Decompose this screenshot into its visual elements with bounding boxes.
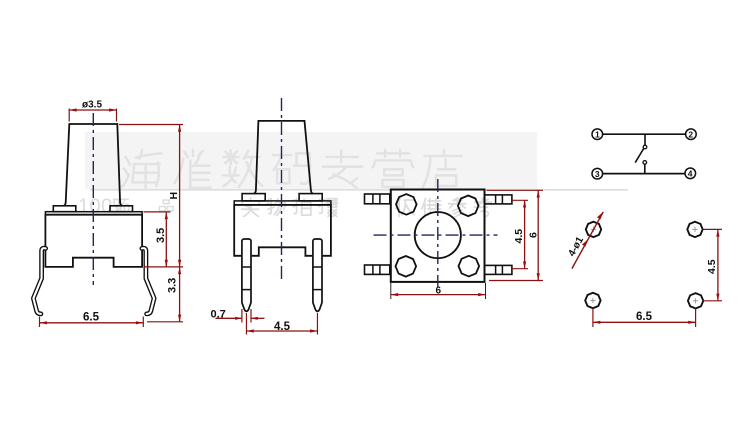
svg-text:H: H — [168, 192, 180, 200]
svg-text:0.7: 0.7 — [211, 309, 226, 321]
svg-text:ø3.5: ø3.5 — [82, 100, 102, 111]
svg-text:3: 3 — [595, 169, 600, 179]
svg-text:2: 2 — [688, 130, 693, 140]
svg-text:4.5: 4.5 — [706, 259, 718, 274]
svg-text:4: 4 — [688, 169, 693, 179]
svg-text:6.5: 6.5 — [83, 312, 100, 324]
svg-text:6: 6 — [528, 232, 540, 238]
svg-text:4.5: 4.5 — [513, 229, 525, 244]
svg-text:6.5: 6.5 — [636, 311, 653, 323]
svg-text:4.5: 4.5 — [274, 321, 291, 333]
svg-text:3.5: 3.5 — [155, 228, 167, 243]
svg-text:3.3: 3.3 — [167, 278, 179, 293]
svg-text:6: 6 — [436, 286, 442, 297]
svg-text:1: 1 — [595, 130, 600, 140]
